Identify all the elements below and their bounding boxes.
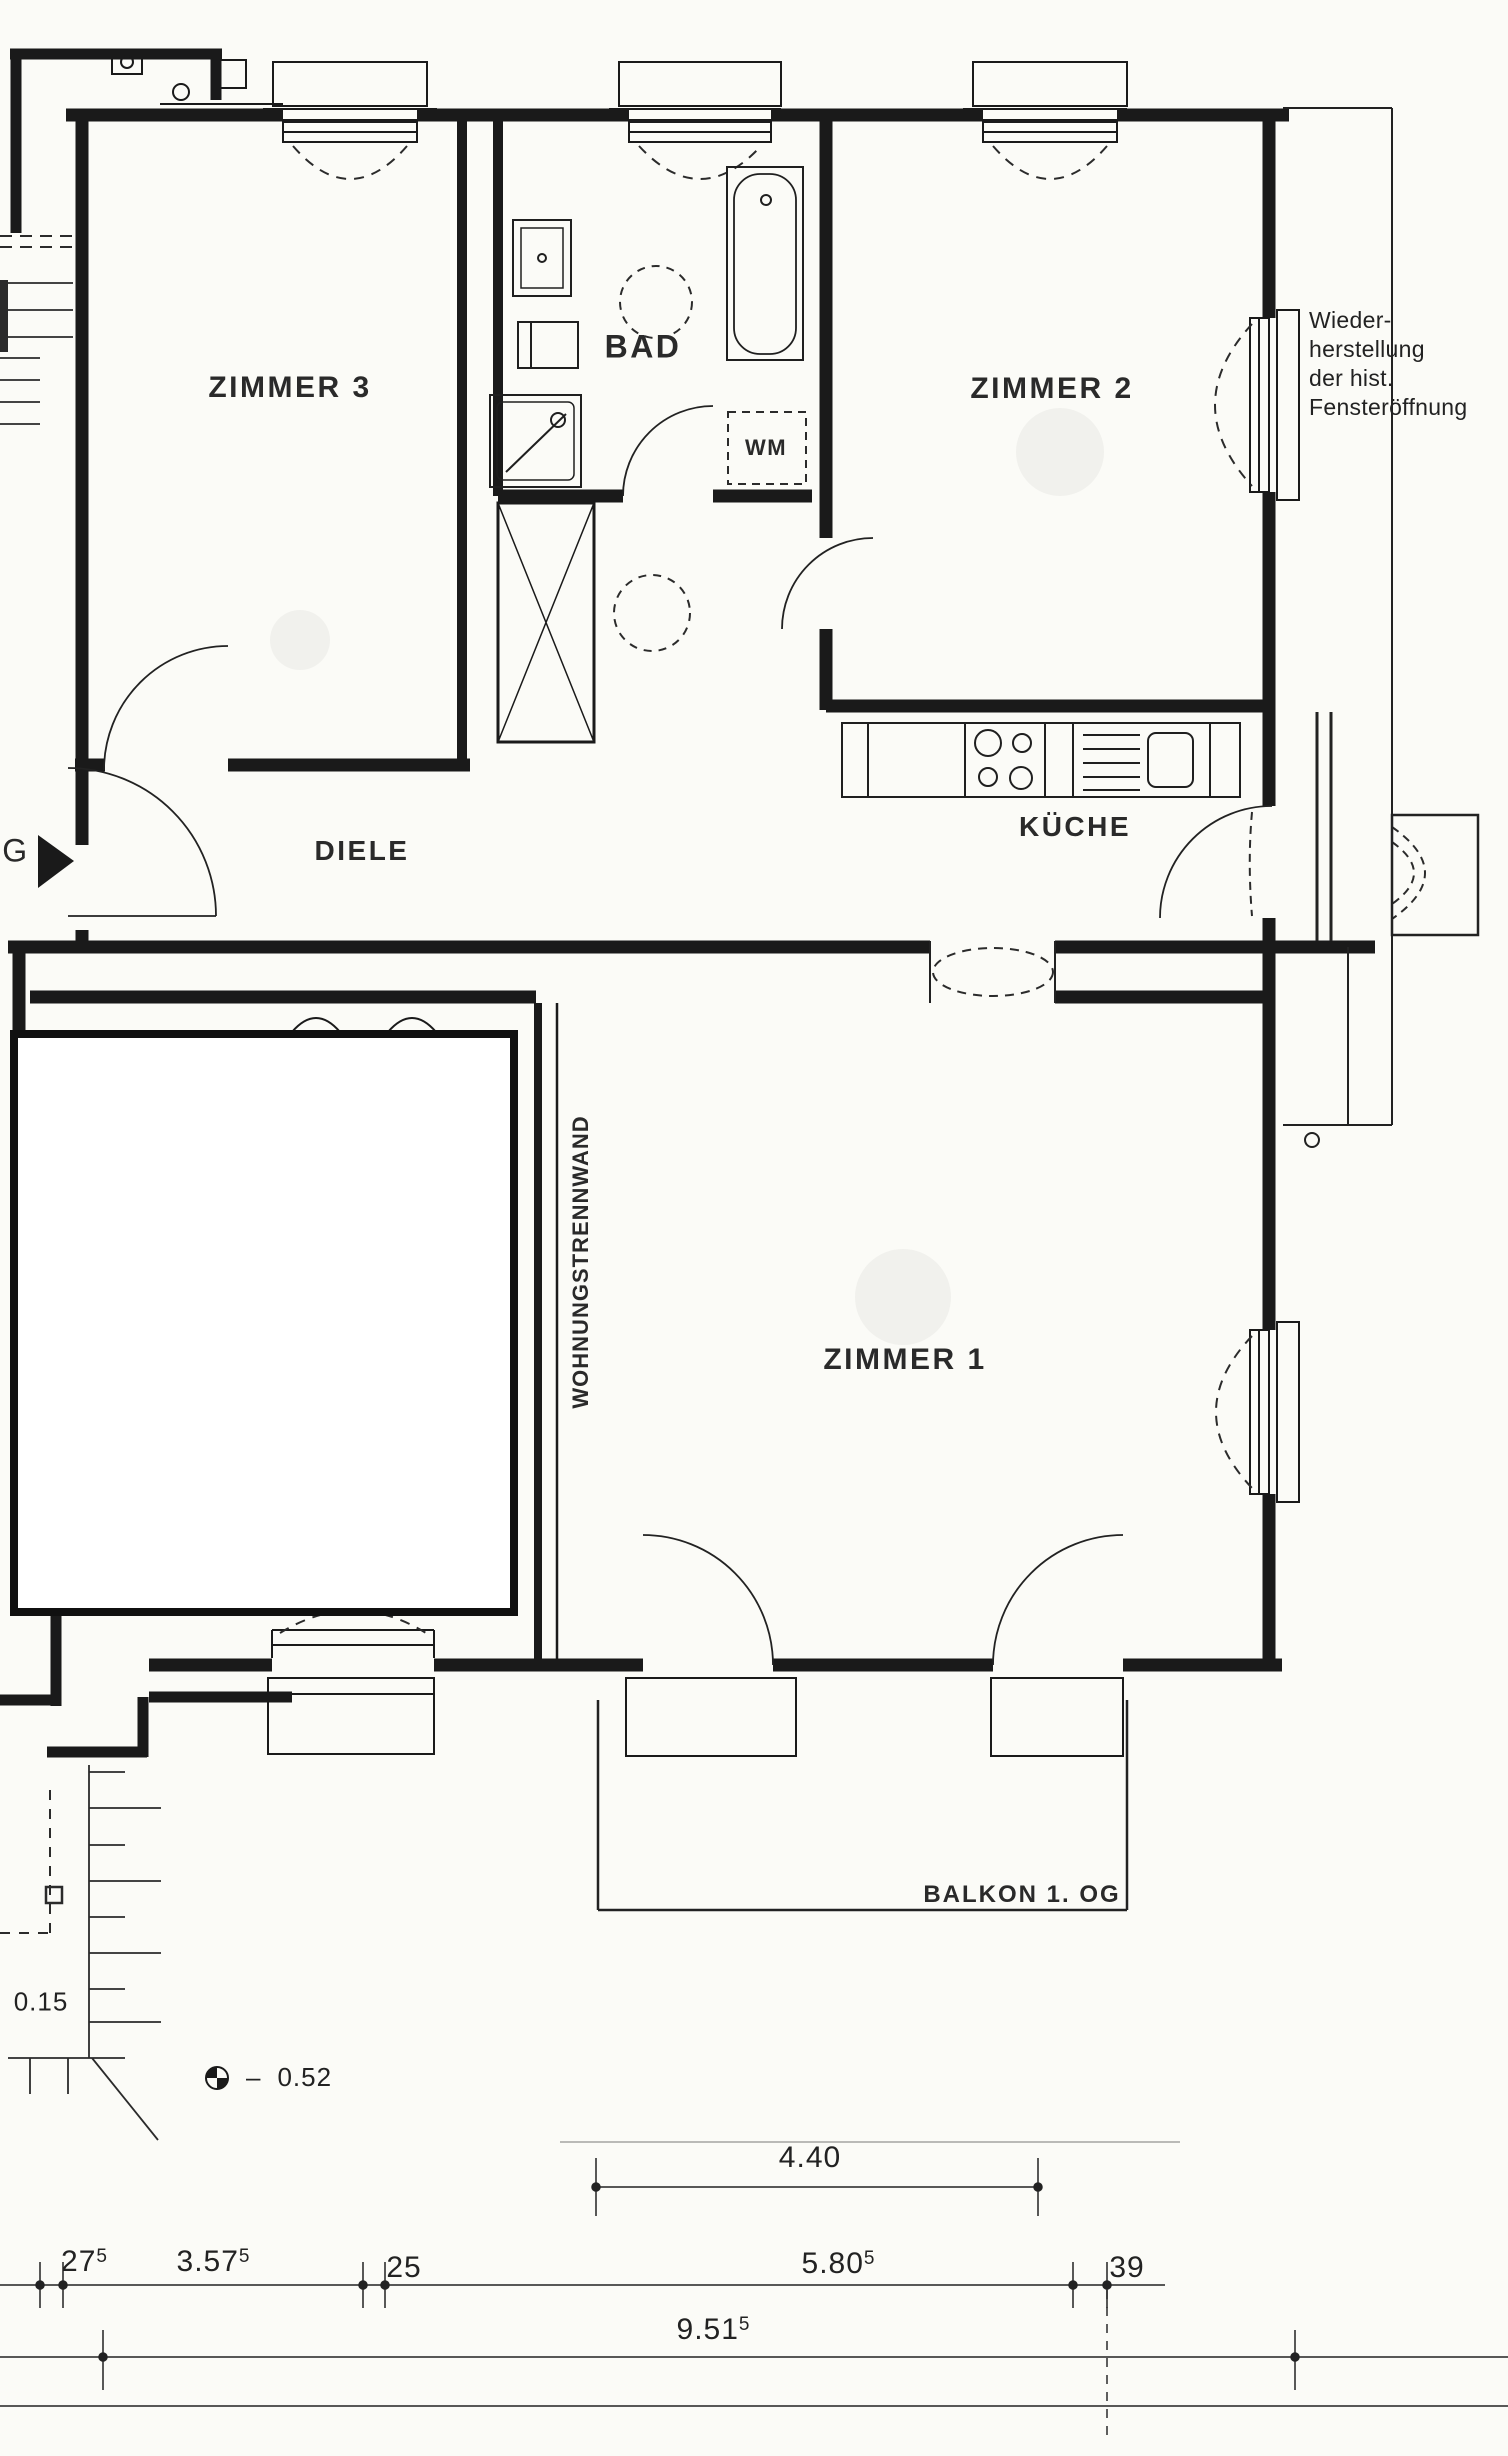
shower	[490, 395, 581, 487]
dimension-main: 27	[61, 2245, 96, 2278]
benchmark-value: 0.52	[277, 2062, 332, 2093]
annotation-line: Fensteröffnung	[1309, 393, 1468, 422]
sink	[513, 220, 571, 296]
stair-hatching	[0, 280, 73, 424]
middle-wall-opening	[930, 941, 1055, 1003]
label-washing-machine: WM	[745, 435, 787, 461]
dimension-27-5: 275	[61, 2245, 107, 2279]
label-balkon: BALKON 1. OG	[923, 1881, 1120, 1909]
terrain-lines	[8, 1765, 161, 2140]
window-historic	[1250, 310, 1299, 500]
annotation-historic-window: Wieder- herstellung der hist. Fensteröff…	[1309, 306, 1468, 422]
bath-partition-walls	[462, 109, 498, 765]
entrance-letter: G	[2, 833, 29, 870]
zimmer2-door-swing	[782, 538, 873, 629]
dimension-sup: 5	[239, 2246, 250, 2267]
room-label-kueche: KÜCHE	[1019, 811, 1131, 843]
dimension-main: 3.57	[177, 2245, 239, 2278]
interior-walls	[8, 109, 1375, 1040]
window-zimmer2	[963, 62, 1127, 142]
dimension-main: 5.80	[802, 2247, 864, 2280]
toilet	[518, 322, 578, 368]
room-label-diele: DIELE	[315, 835, 410, 867]
balcony-door-swing-left	[643, 1535, 773, 1665]
dimension-balcony-width: 4.40	[779, 2141, 841, 2175]
room-label-zimmer-3: ZIMMER 3	[208, 371, 371, 405]
room-label-zimmer-1: ZIMMER 1	[823, 1343, 986, 1377]
window-zimmer3	[263, 62, 437, 142]
balcony-outline	[598, 1700, 1127, 1910]
bathtub	[727, 167, 803, 360]
room-label-zimmer-2: ZIMMER 2	[970, 372, 1133, 406]
entrance-arrow-icon	[38, 835, 74, 888]
dimension-main: 25	[386, 2251, 421, 2284]
dimension-sup: 5	[864, 2248, 875, 2269]
room-label-bad: BAD	[605, 329, 682, 366]
redacted-area	[10, 1030, 518, 1616]
level-floor-offset: 0.15	[14, 1987, 69, 2018]
balcony-door-swing-right	[993, 1535, 1123, 1665]
annotation-line: der hist.	[1309, 364, 1468, 393]
dimension-3-57-5: 3.575	[177, 2245, 250, 2279]
neighbour-top-left	[112, 50, 283, 114]
benchmark-icon	[204, 2065, 230, 2091]
installation-shaft	[498, 503, 594, 742]
bad-door-swing	[623, 406, 713, 496]
window-bad	[609, 62, 781, 142]
dimension-total-9-51-5: 9.515	[677, 2313, 750, 2347]
window-zimmer1-east	[1250, 1322, 1299, 1502]
entry-door-swing	[68, 768, 216, 916]
dimension-main: 9.51	[677, 2313, 739, 2346]
benchmark-group: – 0.52	[204, 2062, 332, 2093]
annotation-line: Wieder-	[1309, 306, 1468, 335]
kueche-door-swing	[1160, 806, 1272, 918]
zimmer3-door-swing	[104, 646, 228, 770]
window-south	[268, 1630, 434, 1754]
benchmark-dash: –	[246, 2062, 261, 2093]
dimension-sup: 5	[96, 2246, 107, 2267]
dimension-sup: 5	[739, 2314, 750, 2335]
apartment-partition-wall	[538, 1003, 557, 1660]
kitchen-counter	[842, 723, 1240, 797]
annotation-line: herstellung	[1309, 335, 1468, 364]
label-wohnungstrennwand: WOHNUNGSTRENNWAND	[568, 1115, 594, 1408]
dimension-39: 39	[1109, 2251, 1144, 2285]
dimension-main: 39	[1109, 2251, 1144, 2284]
floor-plan-sheet: ZIMMER 3 BAD ZIMMER 2 WM KÜCHE DIELE ZIM…	[0, 0, 1508, 2456]
dimension-5-80-5: 5.805	[802, 2247, 875, 2281]
balcony-door-bays	[626, 1678, 1123, 1756]
right-facade-details	[1283, 108, 1478, 1147]
dimension-25: 25	[386, 2251, 421, 2285]
